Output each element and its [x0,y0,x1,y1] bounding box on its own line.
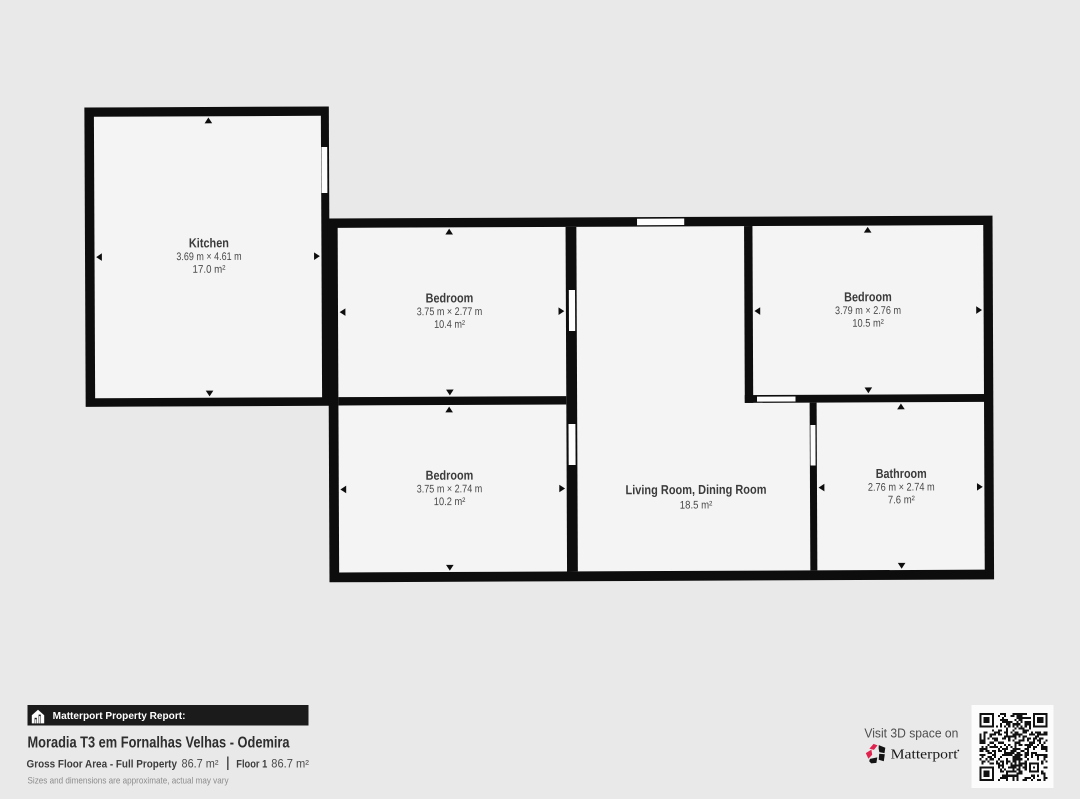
svg-text:Matterport: Matterport [891,748,958,763]
svg-text:3.75 m × 2.77 m: 3.75 m × 2.77 m [417,306,483,318]
svg-text:Bedroom: Bedroom [426,468,474,483]
svg-text:Moradia T3 em Fornalhas Velhas: Moradia T3 em Fornalhas Velhas - Odemira [28,734,290,751]
svg-text:Bedroom: Bedroom [844,289,892,304]
svg-text:Floor 1: Floor 1 [236,759,267,771]
svg-text:86.7 m²: 86.7 m² [271,759,309,771]
svg-text:17.0 m²: 17.0 m² [193,264,226,276]
svg-text:2.76 m × 2.74 m: 2.76 m × 2.74 m [868,481,935,493]
svg-text:Visit 3D space on: Visit 3D space on [864,725,958,740]
svg-text:10.5 m²: 10.5 m² [852,318,884,330]
svg-text:18.5 m²: 18.5 m² [680,499,713,511]
svg-text:Bedroom: Bedroom [426,290,474,305]
svg-text:10.4 m²: 10.4 m² [434,319,465,331]
svg-text:Gross Floor Area - Full Proper: Gross Floor Area - Full Property [27,759,178,771]
svg-text:Matterport Property Report:: Matterport Property Report: [53,711,186,722]
svg-text:Living Room, Dining Room: Living Room, Dining Room [625,482,766,498]
svg-text:Kitchen: Kitchen [189,235,229,250]
svg-text:3.79 m × 2.76 m: 3.79 m × 2.76 m [835,305,901,317]
svg-text:3.69 m × 4.61 m: 3.69 m × 4.61 m [176,251,241,263]
svg-text:10.2 m²: 10.2 m² [434,496,466,508]
svg-text:3.75 m × 2.74 m: 3.75 m × 2.74 m [417,483,483,495]
svg-text:Sizes and dimensions are appro: Sizes and dimensions are approximate, ac… [28,776,229,786]
svg-text:86.7 m²: 86.7 m² [182,759,219,771]
svg-text:Bathroom: Bathroom [876,466,927,481]
svg-text:7.6 m²: 7.6 m² [888,494,915,506]
